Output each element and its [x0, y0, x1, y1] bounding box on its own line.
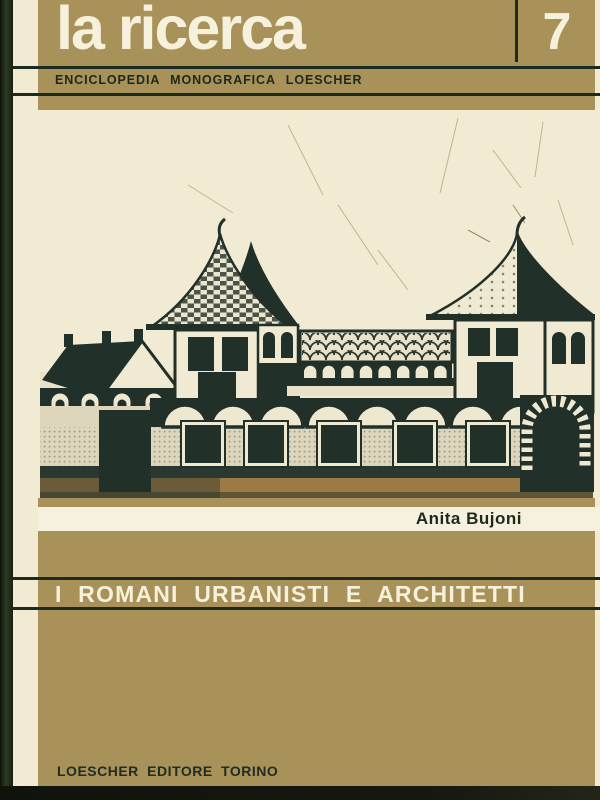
series-number: 7 [522, 4, 592, 60]
scan-edge-left [0, 0, 13, 800]
series-title: la ricerca [56, 0, 304, 60]
arched-gate [520, 395, 594, 492]
scan-edge-bottom [0, 786, 600, 800]
series-subtitle: ENCICLOPEDIA MONOGRAFICA LOESCHER [55, 73, 362, 87]
tan-band-bottom: LOESCHER EDITORE TORINO [38, 610, 595, 786]
book-title: I ROMANI URBANISTI E ARCHITETTI [55, 582, 526, 606]
header-rule-upper [0, 66, 600, 69]
front-wall [40, 395, 594, 498]
header-rule-lower [0, 93, 600, 96]
cover-illustration-roman-villa [38, 110, 595, 498]
author-strip: Anita Bujoni [38, 507, 600, 531]
title-rule-upper [0, 577, 600, 580]
title-rule-lower [0, 607, 600, 610]
book-cover-scan: LOESCHER EDITORE TORINO la ricerca 7 ENC… [0, 0, 600, 800]
central-gallery [257, 325, 459, 400]
series-number-divider [515, 0, 518, 62]
author-name: Anita Bujoni [416, 507, 522, 531]
publisher-imprint: LOESCHER EDITORE TORINO [57, 763, 278, 779]
tan-strip-above-author [38, 498, 595, 507]
